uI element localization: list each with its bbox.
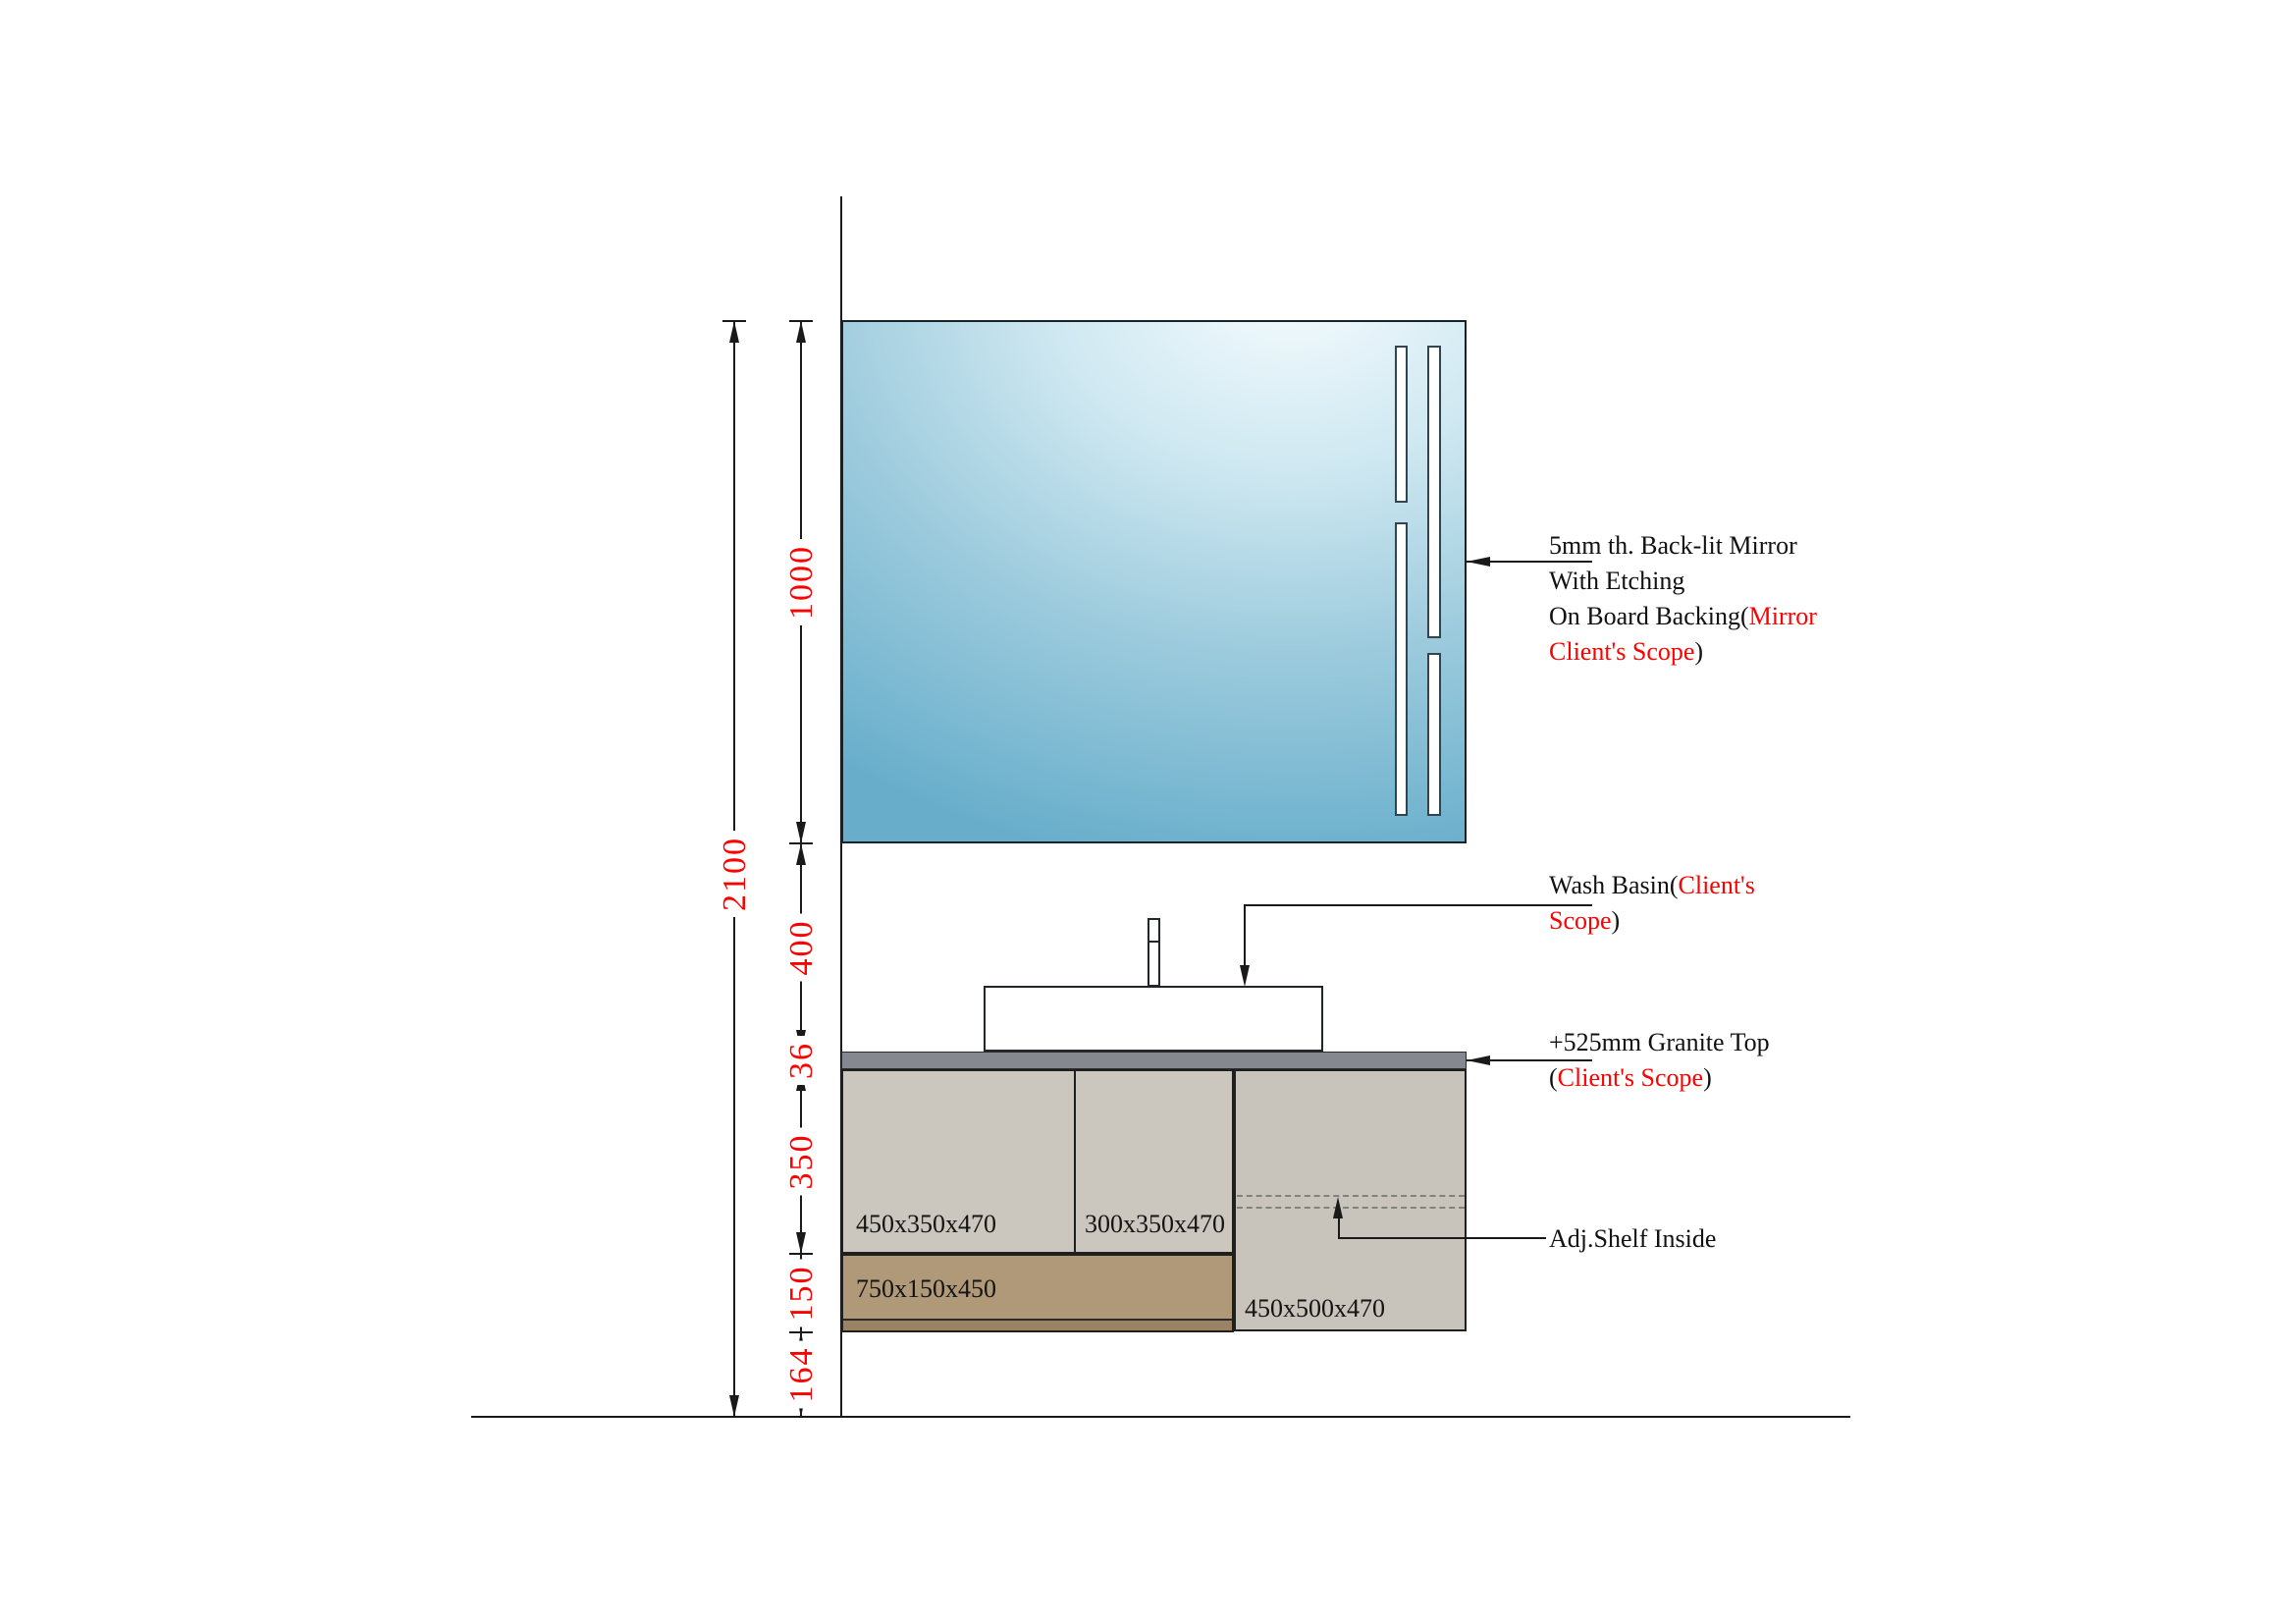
mirror-annotation-line1: 5mm th. Back-lit Mirror: [1549, 531, 1797, 560]
leader-arrowhead-icon: [1240, 965, 1250, 987]
leader-arrowhead-icon: [1333, 1197, 1343, 1218]
dimension-label-mirror-height: 1000: [783, 539, 821, 625]
dimension-label-floor-clearance: 164: [783, 1341, 821, 1409]
dimension-label-granite-thickness: 36: [783, 1036, 821, 1085]
mirror-annotation-line3: On Board Backing(: [1549, 602, 1749, 630]
mirror-annotation-line4-close: ): [1694, 637, 1703, 666]
basin-annotation-line2-close: ): [1612, 906, 1621, 935]
mirror-etching-bar: [1395, 522, 1408, 816]
dimension-arrow-down: [729, 1395, 739, 1417]
shelf-dashed-line: [1237, 1207, 1465, 1209]
shelf-annotation: Adj.Shelf Inside: [1549, 1221, 1716, 1257]
basin-leader-line: [1245, 904, 1592, 906]
mirror-annotation: 5mm th. Back-lit Mirror With Etching On …: [1549, 528, 1817, 670]
dimension-arrow-up: [729, 321, 739, 343]
mirror-etching-bar: [1427, 653, 1441, 816]
backlit-mirror: [841, 320, 1467, 843]
dimension-label-mirror-to-counter: 400: [783, 914, 821, 982]
cabinet-right: [1234, 1069, 1467, 1331]
granite-annotation-line1: +525mm Granite Top: [1549, 1028, 1770, 1056]
dimension-label-cabinet-height: 350: [783, 1128, 821, 1196]
dimension-arrow-down: [796, 1232, 806, 1254]
leader-arrowhead-icon: [1467, 1055, 1490, 1065]
faucet-joint-line: [1149, 941, 1158, 943]
granite-annotation-red: Client's Scope: [1558, 1063, 1703, 1092]
granite-top: [841, 1052, 1467, 1069]
drawer-bottom-strip: [843, 1319, 1232, 1330]
dimension-label-overall: 2100: [717, 831, 754, 917]
mirror-annotation-line4-red: Client's Scope: [1549, 637, 1694, 666]
granite-annotation-close: ): [1703, 1063, 1712, 1092]
mirror-annotation-line2: With Etching: [1549, 567, 1684, 595]
floor-line: [471, 1416, 1850, 1418]
basin-annotation-line1-red: Client's: [1679, 871, 1755, 899]
faucet: [1148, 918, 1160, 987]
shelf-annotation-label: Adj.Shelf Inside: [1549, 1224, 1716, 1253]
cabinet-label-upper-middle: 300x350x470: [1085, 1210, 1225, 1239]
wash-basin: [984, 986, 1323, 1052]
leader-arrowhead-icon: [1467, 557, 1490, 567]
cabinet-label-right: 450x500x470: [1245, 1294, 1385, 1324]
basin-annotation-line1: Wash Basin(: [1549, 871, 1679, 899]
dimension-arrow-up: [796, 321, 806, 343]
mirror-etching-bar: [1427, 346, 1441, 638]
dimension-label-drawer-height: 150: [783, 1260, 821, 1327]
mirror-annotation-line3-red: Mirror: [1749, 602, 1817, 630]
vanity-elevation-drawing: 450x350x470 300x350x470 750x150x450 450x…: [0, 0, 2296, 1623]
dimension-arrow-up: [796, 843, 806, 865]
drawer-label: 750x150x450: [856, 1274, 996, 1304]
dimension-arrow-down: [796, 822, 806, 843]
granite-annotation-open: (: [1549, 1063, 1558, 1092]
shelf-leader-riser: [1338, 1217, 1340, 1239]
wash-basin-annotation: Wash Basin(Client's Scope): [1549, 868, 1755, 939]
mirror-etching-bar: [1395, 346, 1408, 503]
shelf-leader-line: [1338, 1237, 1546, 1239]
shelf-dashed-line: [1237, 1195, 1465, 1197]
cabinet-label-upper-left: 450x350x470: [856, 1210, 996, 1239]
granite-annotation: +525mm Granite Top (Client's Scope): [1549, 1025, 1770, 1096]
basin-annotation-line2-red: Scope: [1549, 906, 1612, 935]
basin-leader-drop: [1244, 904, 1246, 965]
